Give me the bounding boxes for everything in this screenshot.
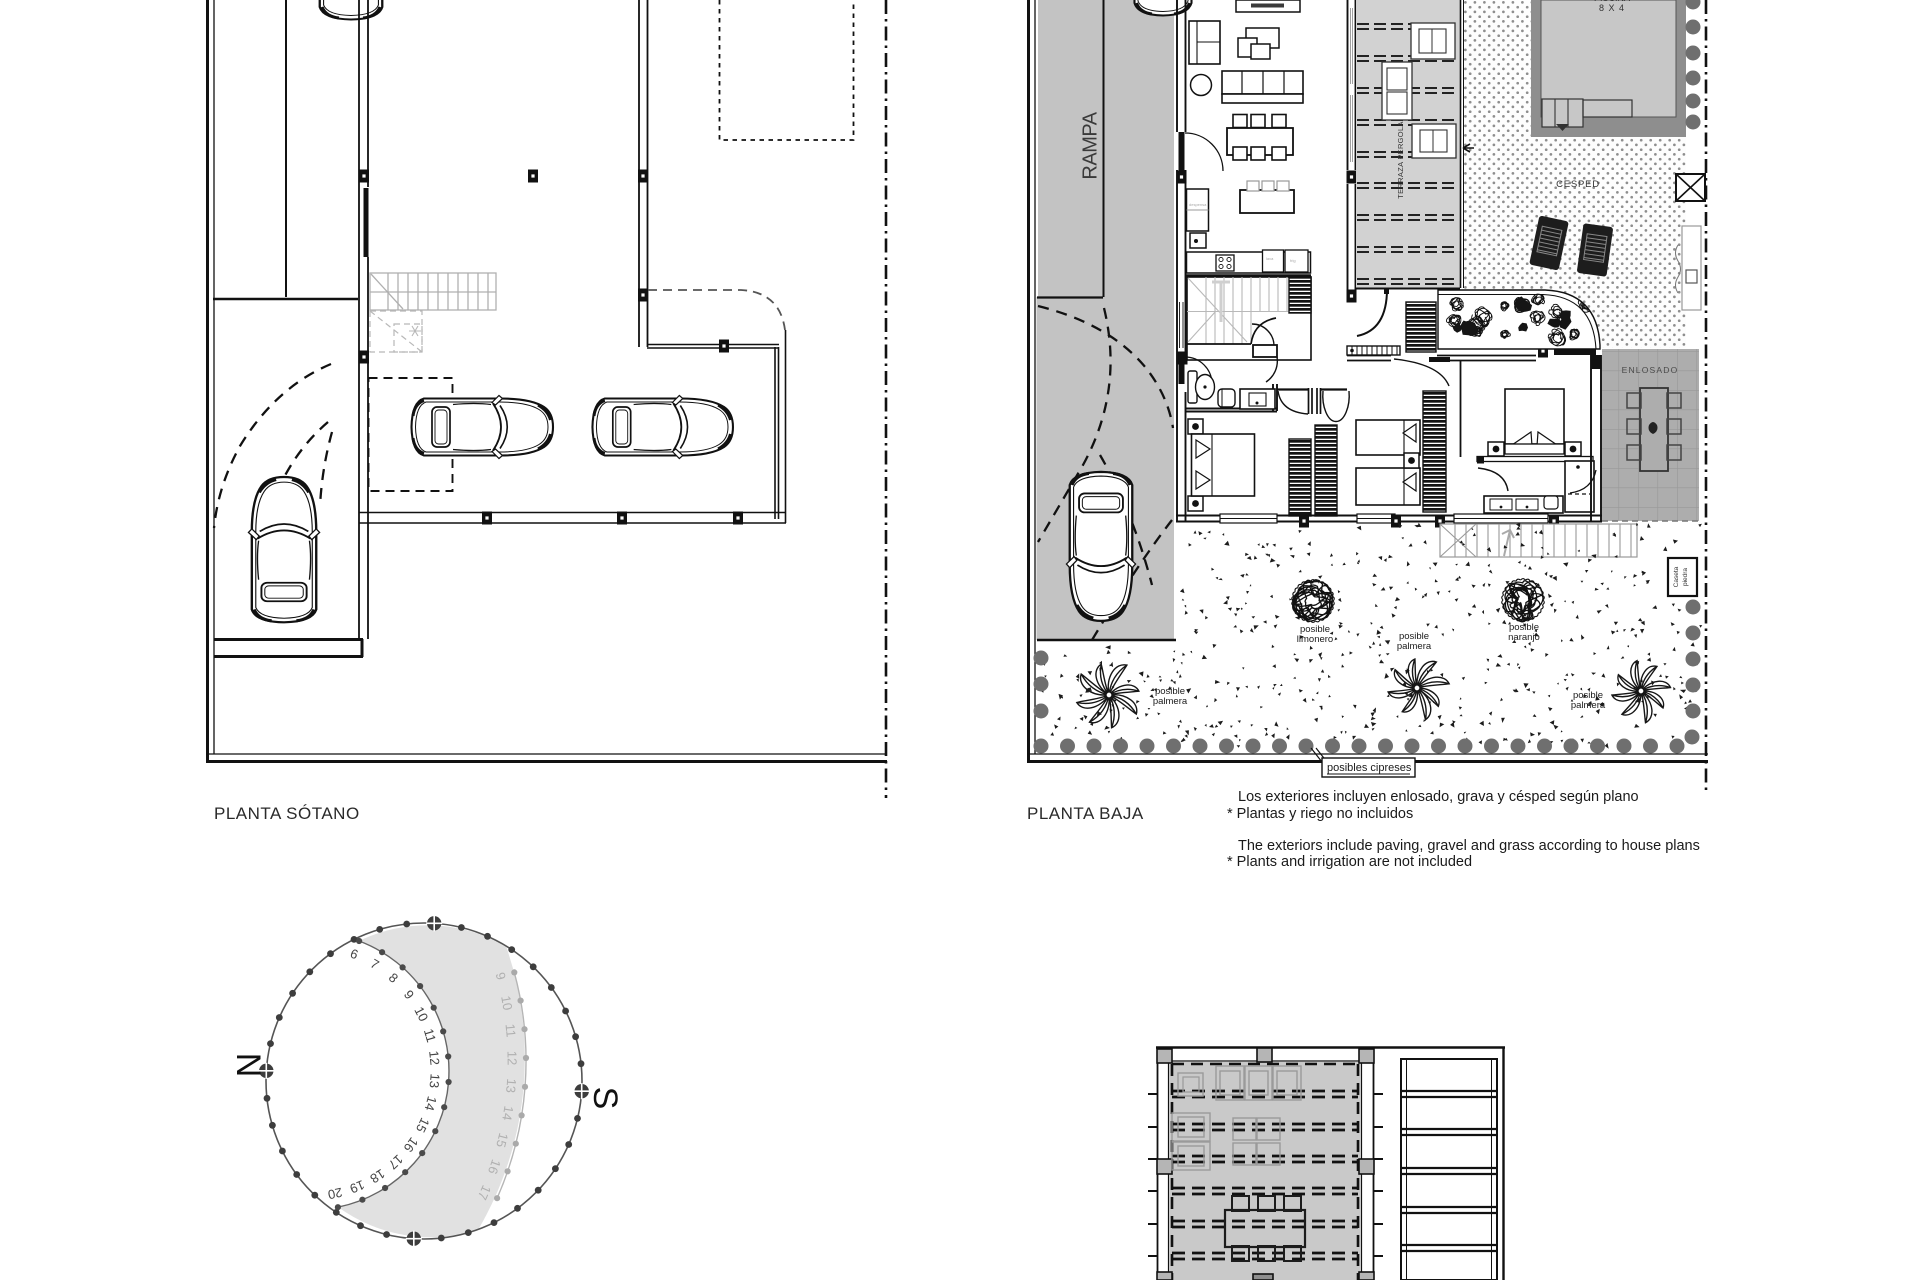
- svg-text:20: 20: [327, 1185, 344, 1203]
- svg-text:posibles cipreses: posibles cipreses: [1327, 762, 1412, 774]
- svg-text:piedra: piedra: [1682, 568, 1689, 586]
- svg-text:PLANTA SÓTANO: PLANTA SÓTANO: [214, 804, 360, 823]
- svg-text:ENLOSADO: ENLOSADO: [1622, 365, 1679, 375]
- svg-text:12: 12: [426, 1050, 442, 1066]
- svg-text:Los exteriores incluyen enlosa: Los exteriores incluyen enlosado, grava …: [1238, 789, 1639, 805]
- svg-text:posiblepalmera: posiblepalmera: [1153, 686, 1188, 707]
- svg-text:14: 14: [499, 1105, 516, 1122]
- svg-text:PLANTA BAJA: PLANTA BAJA: [1027, 804, 1144, 823]
- svg-text:frig: frig: [1290, 258, 1296, 263]
- svg-text:* Plants and irrigation are no: * Plants and irrigation are not included: [1227, 854, 1472, 870]
- svg-text:N: N: [229, 1053, 267, 1078]
- svg-text:posiblepalmera: posiblepalmera: [1571, 690, 1606, 711]
- svg-text:11: 11: [503, 1023, 519, 1038]
- svg-text:12: 12: [504, 1051, 519, 1066]
- svg-text:RAMPA: RAMPA: [1079, 111, 1101, 179]
- svg-text:CESPED: CESPED: [1556, 179, 1600, 190]
- svg-text:The exteriors include paving,: The exteriors include paving, gravel and…: [1238, 838, 1700, 854]
- svg-text:posiblelimonero: posiblelimonero: [1297, 624, 1333, 645]
- svg-text:posiblepalmera: posiblepalmera: [1397, 631, 1432, 652]
- svg-text:S: S: [586, 1087, 624, 1110]
- svg-text:* Plantas y riego no incluidos: * Plantas y riego no incluidos: [1227, 806, 1413, 822]
- svg-text:13: 13: [503, 1078, 519, 1094]
- svg-text:8 X 4: 8 X 4: [1599, 3, 1625, 13]
- svg-text:10: 10: [498, 995, 515, 1012]
- svg-text:despensa: despensa: [1189, 202, 1207, 207]
- svg-text:TERRAZA PERGOLA: TERRAZA PERGOLA: [1396, 121, 1405, 198]
- svg-text:posiblenaranjo: posiblenaranjo: [1508, 622, 1540, 643]
- svg-text:lava: lava: [1266, 256, 1274, 261]
- svg-text:13: 13: [427, 1073, 443, 1089]
- svg-text:Caseta: Caseta: [1673, 566, 1680, 587]
